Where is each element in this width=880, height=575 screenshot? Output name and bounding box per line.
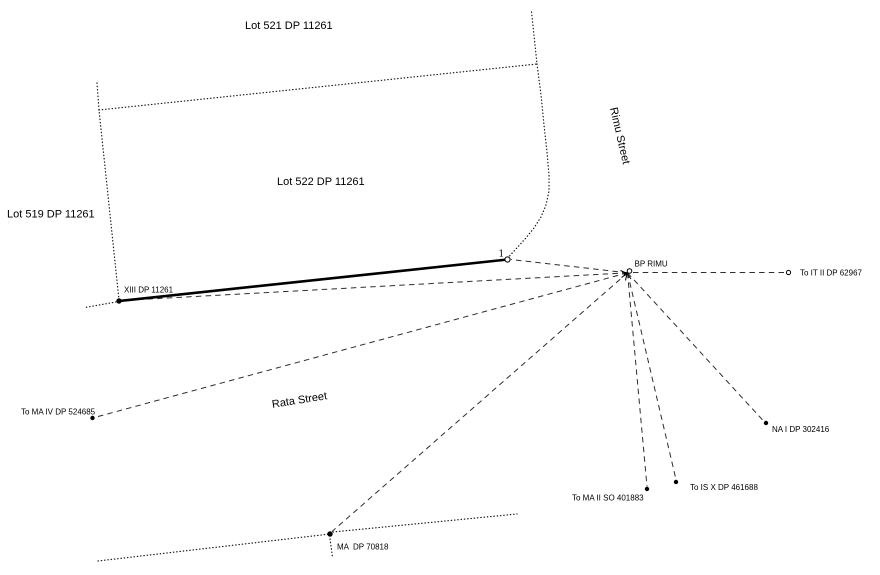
label-xiii: XIII DP 11261 bbox=[124, 286, 174, 295]
street-line-southeast bbox=[333, 514, 517, 532]
ray-bp-to-node-1 bbox=[511, 260, 628, 273]
label-lot-519: Lot 519 DP 11261 bbox=[7, 209, 95, 221]
mark-na-i bbox=[764, 421, 768, 425]
mark-ma bbox=[327, 531, 332, 536]
boundary-lot522-north bbox=[99, 64, 537, 110]
cadastral-survey-plan: Lot 521 DP 11261Lot 522 DP 11261Lot 519 … bbox=[0, 0, 880, 575]
label-to-is-x: To IS X DP 461688 bbox=[690, 483, 758, 492]
mark-is-x bbox=[674, 480, 678, 484]
label-node-1: 1 bbox=[499, 250, 505, 260]
ray-bp-to-ma-ii bbox=[628, 273, 648, 487]
label-lot-521: Lot 521 DP 11261 bbox=[245, 20, 333, 32]
traverse-line-1-to-xiii bbox=[119, 260, 508, 302]
boundary-lot522-east-curve bbox=[510, 64, 550, 256]
boundary-stub-southwest bbox=[85, 302, 116, 308]
label-na-i: NA I DP 302416 bbox=[772, 425, 830, 434]
mark-ma-ii bbox=[645, 487, 649, 491]
label-bp-rimu: BP RIMU bbox=[635, 260, 668, 269]
mark-node-1 bbox=[505, 257, 510, 262]
mark-bp-rimu-circle bbox=[627, 269, 632, 274]
label-lot-522: Lot 522 DP 11261 bbox=[277, 176, 365, 188]
boundary-rimu-street-north bbox=[532, 12, 538, 64]
boundary-lot522-west bbox=[97, 83, 119, 300]
mark-it-ii bbox=[786, 270, 790, 274]
tick-below-ma-mark bbox=[330, 539, 333, 557]
label-to-ma-iv: To MA IV DP 524685 bbox=[21, 408, 96, 417]
label-ma-dp: MA DP 70818 bbox=[337, 543, 389, 552]
label-rimu-street: Rimu Street bbox=[607, 106, 632, 165]
survey-plan-svg: Lot 521 DP 11261Lot 522 DP 11261Lot 519 … bbox=[0, 0, 880, 575]
ray-bp-to-is-x bbox=[628, 273, 677, 480]
ray-bp-to-xiii bbox=[122, 273, 628, 301]
label-to-it-ii: To IT II DP 62967 bbox=[800, 269, 863, 278]
label-rata-street: Rata Street bbox=[271, 390, 328, 411]
label-to-ma-ii: To MA II SO 401883 bbox=[572, 494, 644, 503]
mark-xiii bbox=[116, 298, 121, 303]
ray-bp-to-na-i bbox=[628, 273, 765, 422]
street-line-southwest bbox=[98, 534, 330, 561]
mark-bp-rimu-dot bbox=[624, 272, 627, 275]
